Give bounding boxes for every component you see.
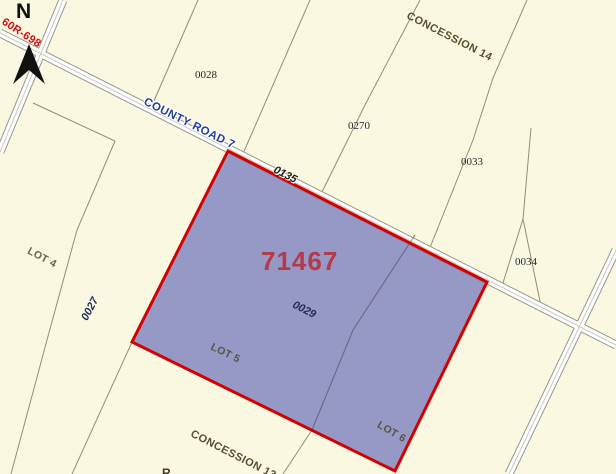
selected-parcel-roll-number[interactable]: 71467 (261, 246, 338, 277)
parcel-number-0270: 0270 (348, 120, 370, 132)
map-layers (0, 0, 616, 474)
north-label: N (16, 0, 31, 24)
map-canvas[interactable]: N 60R-698 COUNTY ROAD 7 0135 CONCESSION … (0, 0, 616, 474)
clipped-label: R (162, 466, 171, 474)
parcel-number-0033: 0033 (461, 156, 483, 168)
parcel-number-0028: 0028 (195, 69, 217, 81)
parcel-number-0034: 0034 (515, 256, 537, 268)
